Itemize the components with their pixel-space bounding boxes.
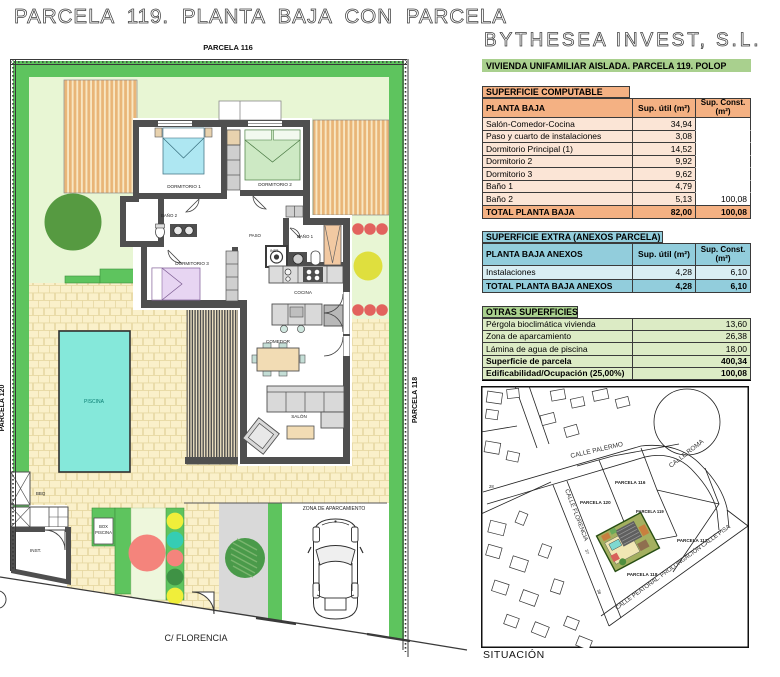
svg-text:DORMITORIO 2: DORMITORIO 2: [258, 182, 292, 187]
svg-text:BAÑO 2: BAÑO 2: [161, 213, 178, 218]
svg-text:C/ FLORENCIA: C/ FLORENCIA: [164, 633, 227, 643]
svg-text:28: 28: [489, 484, 494, 489]
svg-text:PISCINA: PISCINA: [95, 530, 112, 535]
svg-text:PARCELA 120: PARCELA 120: [580, 500, 611, 505]
svg-text:INST.: INST.: [270, 249, 279, 253]
svg-text:PARCELA 118: PARCELA 118: [412, 377, 419, 423]
svg-text:ZONA DE APARCAMIENTO: ZONA DE APARCAMIENTO: [303, 506, 366, 512]
svg-text:BBQ: BBQ: [36, 491, 46, 496]
svg-text:DORMITORIO 3: DORMITORIO 3: [175, 261, 209, 266]
svg-text:PARCELA 119: PARCELA 119: [636, 509, 664, 514]
svg-text:PARCELA 120: PARCELA 120: [0, 385, 6, 432]
svg-text:BOX: BOX: [99, 524, 108, 529]
svg-text:INST.: INST.: [30, 548, 41, 553]
svg-text:PARCELA 117: PARCELA 117: [677, 538, 708, 543]
svg-text:DORMITORIO 1: DORMITORIO 1: [167, 184, 201, 189]
svg-text:COMEDOR: COMEDOR: [266, 339, 291, 344]
svg-text:PARCELA 116: PARCELA 116: [203, 43, 253, 52]
svg-text:BAÑO 1: BAÑO 1: [297, 234, 314, 239]
svg-text:PARCELA 116: PARCELA 116: [615, 480, 646, 485]
svg-text:SALÓN: SALÓN: [291, 413, 307, 419]
svg-text:PISCINA: PISCINA: [84, 399, 105, 405]
svg-text:COCINA: COCINA: [294, 290, 313, 295]
svg-text:PARCELA 118: PARCELA 118: [627, 572, 658, 577]
svg-text:PASO: PASO: [249, 233, 261, 238]
